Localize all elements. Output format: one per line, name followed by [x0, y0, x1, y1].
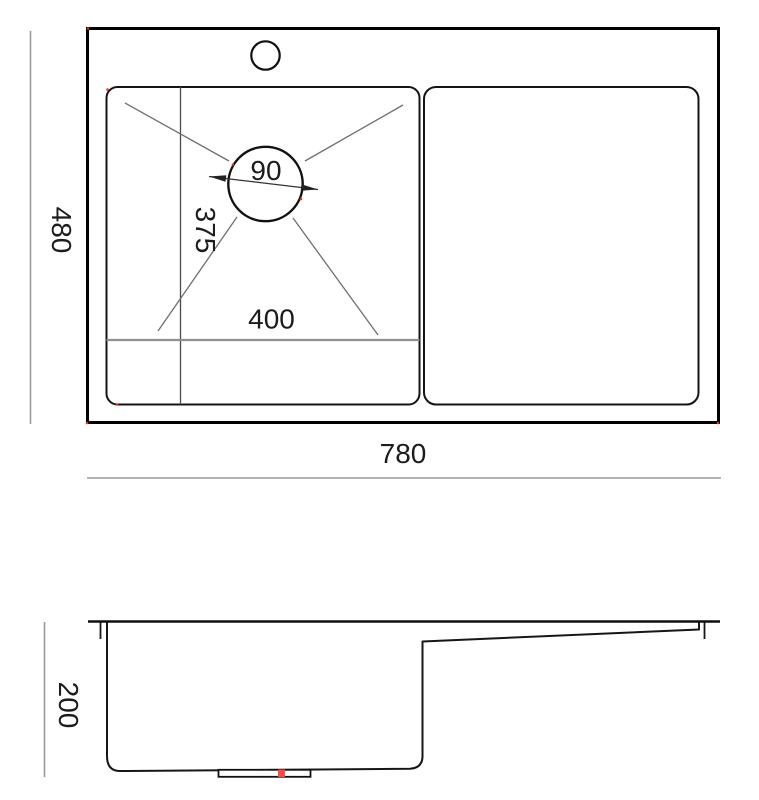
bowl-depth-label: 375: [190, 207, 221, 254]
snap-marker-dot: [116, 403, 119, 406]
side-view: 200: [45, 622, 721, 778]
overall-width-label: 780: [380, 438, 427, 469]
faucet-hole: [251, 41, 279, 69]
overall-depth-label: 480: [46, 207, 77, 254]
overall-width-dimension: 780: [87, 438, 721, 478]
sink-technical-drawing: 90 375 400 480 780: [0, 0, 759, 800]
top-view: 90 375 400: [88, 29, 719, 423]
bowl-height-label: 200: [53, 682, 84, 729]
snap-marker-dot: [232, 163, 235, 166]
corner-leader-line-top-left: [125, 103, 229, 161]
drainboard-outline: [424, 87, 699, 405]
drain-marker-red: [278, 770, 285, 778]
snap-marker-dot: [300, 198, 303, 201]
snap-marker-dot: [106, 88, 109, 91]
bowl-outline: [107, 87, 420, 405]
snap-marker-dot: [87, 27, 90, 30]
drain-diameter-label: 90: [250, 155, 281, 186]
drawing-svg: 90 375 400 480 780: [0, 0, 759, 800]
bowl-profile: [107, 623, 699, 772]
corner-leader-line-top-right: [305, 105, 403, 161]
snap-marker-dot: [717, 422, 720, 425]
corner-leader-line-bottom-right: [293, 218, 378, 335]
overall-depth-dimension: 480: [31, 31, 78, 424]
drain-fitting: [219, 770, 311, 777]
bowl-width-label: 400: [248, 304, 295, 335]
snap-marker-dot: [86, 422, 89, 425]
